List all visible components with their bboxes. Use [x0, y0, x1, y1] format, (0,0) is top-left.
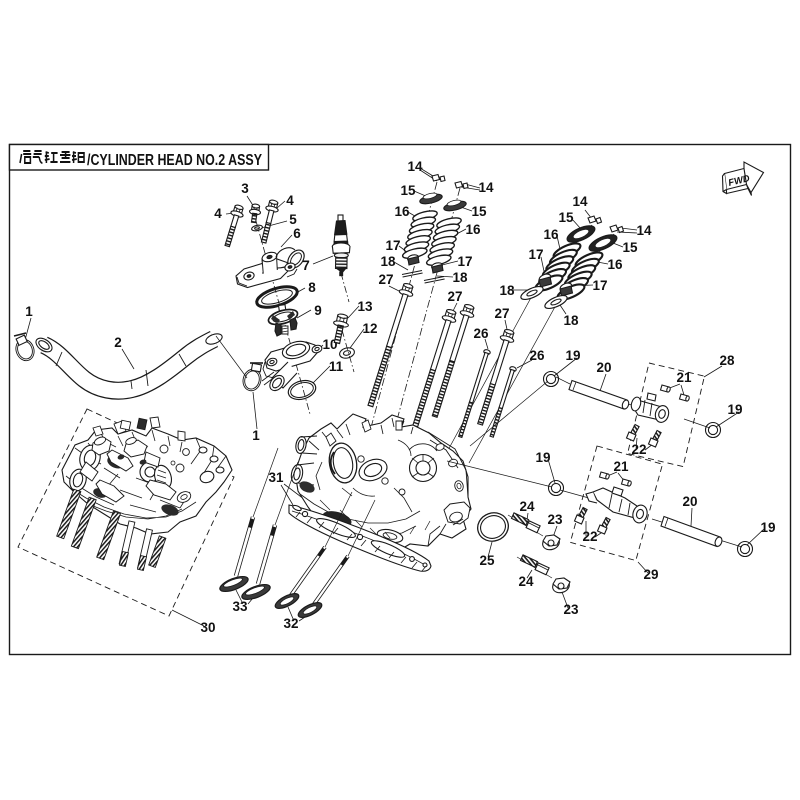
svg-text:23: 23: [563, 602, 579, 617]
svg-text:1: 1: [25, 304, 33, 319]
svg-text:16: 16: [394, 204, 410, 219]
svg-text:3: 3: [241, 181, 249, 196]
svg-text:14: 14: [572, 194, 588, 209]
svg-text:27: 27: [447, 289, 462, 304]
svg-text:26: 26: [473, 326, 489, 341]
svg-text:17: 17: [592, 278, 607, 293]
svg-text:13: 13: [357, 299, 373, 314]
svg-text:27: 27: [494, 306, 509, 321]
svg-text:14: 14: [478, 180, 494, 195]
svg-text:12: 12: [362, 321, 377, 336]
svg-text:16: 16: [465, 222, 481, 237]
svg-text:6: 6: [293, 226, 301, 241]
svg-text:33: 33: [232, 599, 248, 614]
svg-text:4: 4: [286, 193, 294, 208]
svg-text:24: 24: [518, 574, 534, 589]
svg-text:25: 25: [479, 553, 495, 568]
svg-text:32: 32: [283, 616, 298, 631]
svg-text:2: 2: [114, 335, 122, 350]
svg-text:/CYLINDER HEAD NO.2 ASSY: /CYLINDER HEAD NO.2 ASSY: [87, 152, 263, 169]
svg-text:30: 30: [200, 620, 215, 635]
svg-text:14: 14: [636, 223, 652, 238]
svg-text:20: 20: [596, 360, 611, 375]
svg-text:21: 21: [613, 459, 629, 474]
svg-text:8: 8: [308, 280, 316, 295]
svg-text:27: 27: [378, 272, 393, 287]
svg-text:26: 26: [529, 348, 545, 363]
svg-text:14: 14: [407, 159, 423, 174]
svg-text:24: 24: [519, 499, 535, 514]
svg-text:18: 18: [380, 254, 396, 269]
svg-text:4: 4: [214, 206, 222, 221]
svg-text:23: 23: [547, 512, 563, 527]
svg-text:15: 15: [622, 240, 638, 255]
svg-text:1: 1: [252, 428, 260, 443]
svg-text:19: 19: [535, 450, 550, 465]
svg-text:19: 19: [760, 520, 775, 535]
svg-text:17: 17: [385, 238, 400, 253]
svg-text:18: 18: [452, 270, 468, 285]
svg-text:17: 17: [457, 254, 472, 269]
svg-text:29: 29: [643, 567, 658, 582]
svg-text:16: 16: [543, 227, 559, 242]
svg-text:18: 18: [563, 313, 579, 328]
svg-text:20: 20: [682, 494, 697, 509]
svg-text:16: 16: [607, 257, 623, 272]
svg-text:31: 31: [268, 470, 284, 485]
svg-text:15: 15: [471, 204, 487, 219]
svg-text:11: 11: [329, 359, 344, 374]
svg-text:5: 5: [289, 212, 297, 227]
svg-text:18: 18: [499, 283, 515, 298]
svg-text:15: 15: [558, 210, 574, 225]
svg-text:9: 9: [314, 303, 322, 318]
svg-text:15: 15: [400, 183, 416, 198]
